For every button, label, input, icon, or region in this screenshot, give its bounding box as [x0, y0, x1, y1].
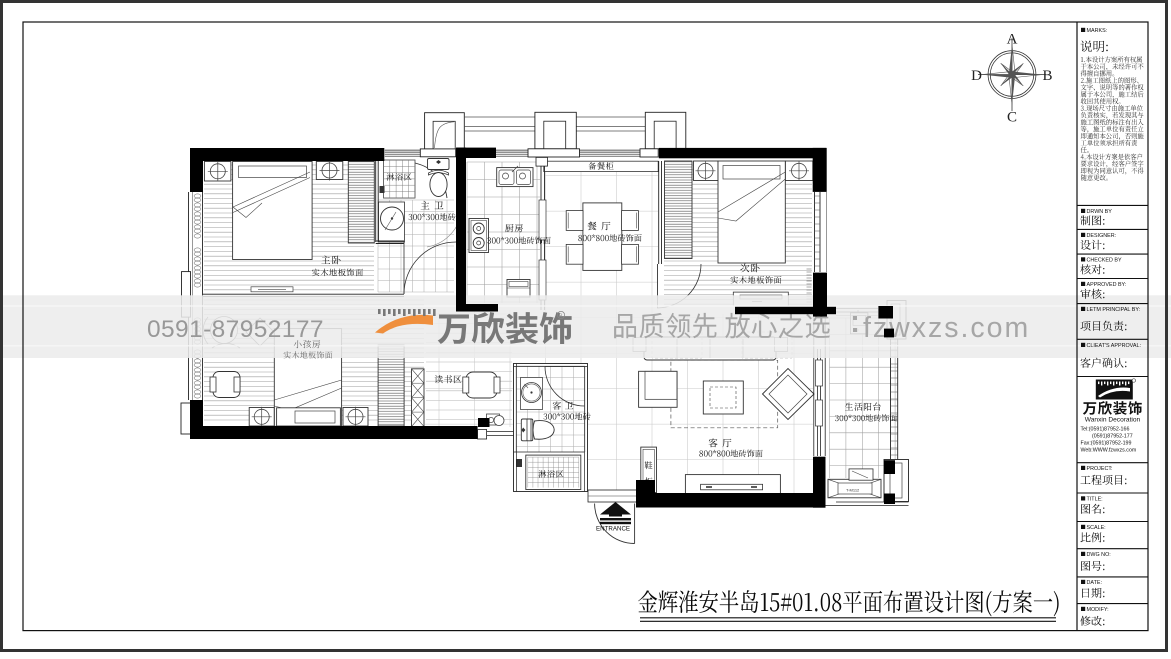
- svg-text:A: A: [1007, 32, 1018, 48]
- svg-text:PROJECT:: PROJECT:: [1087, 466, 1113, 472]
- svg-text:APPROVED BY:: APPROVED BY:: [1087, 282, 1127, 288]
- svg-text:T-M112: T-M112: [846, 488, 860, 493]
- svg-text:MARKS:: MARKS:: [1087, 28, 1108, 34]
- svg-text:ENTRANCE: ENTRANCE: [596, 526, 630, 533]
- svg-text:Fax:(0591)87952-199: Fax:(0591)87952-199: [1081, 441, 1132, 447]
- svg-text:DESIGNER:: DESIGNER:: [1087, 233, 1117, 239]
- svg-text:R: R: [559, 313, 563, 319]
- svg-text:Web:WWW.fzwxzs.com: Web:WWW.fzwxzs.com: [1081, 448, 1137, 454]
- svg-text:CHECKED BY: CHECKED BY: [1087, 258, 1122, 264]
- svg-text:0591-87952177: 0591-87952177: [147, 316, 324, 343]
- svg-text:DRWN BY: DRWN BY: [1087, 209, 1113, 215]
- svg-text:Wanxin Decoration: Wanxin Decoration: [1085, 417, 1141, 424]
- svg-text:MODIFY:: MODIFY:: [1087, 607, 1109, 613]
- svg-text:Tel:(0591)87952-166: Tel:(0591)87952-166: [1081, 427, 1130, 433]
- svg-text:LETM PRINCIPAL BY:: LETM PRINCIPAL BY:: [1087, 307, 1141, 313]
- svg-text:SCALE:: SCALE:: [1087, 525, 1106, 531]
- svg-text:DATE:: DATE:: [1087, 580, 1102, 586]
- svg-text:B: B: [1042, 68, 1052, 84]
- svg-text:CLIEAT'S APPROVAL:: CLIEAT'S APPROVAL:: [1087, 343, 1141, 349]
- svg-text:(0591)87952-177: (0591)87952-177: [1092, 434, 1133, 440]
- svg-text:TITLE:: TITLE:: [1087, 497, 1103, 503]
- svg-text:C: C: [1007, 110, 1017, 126]
- svg-text:DWG NO:: DWG NO:: [1087, 552, 1111, 558]
- svg-text:D: D: [971, 68, 982, 84]
